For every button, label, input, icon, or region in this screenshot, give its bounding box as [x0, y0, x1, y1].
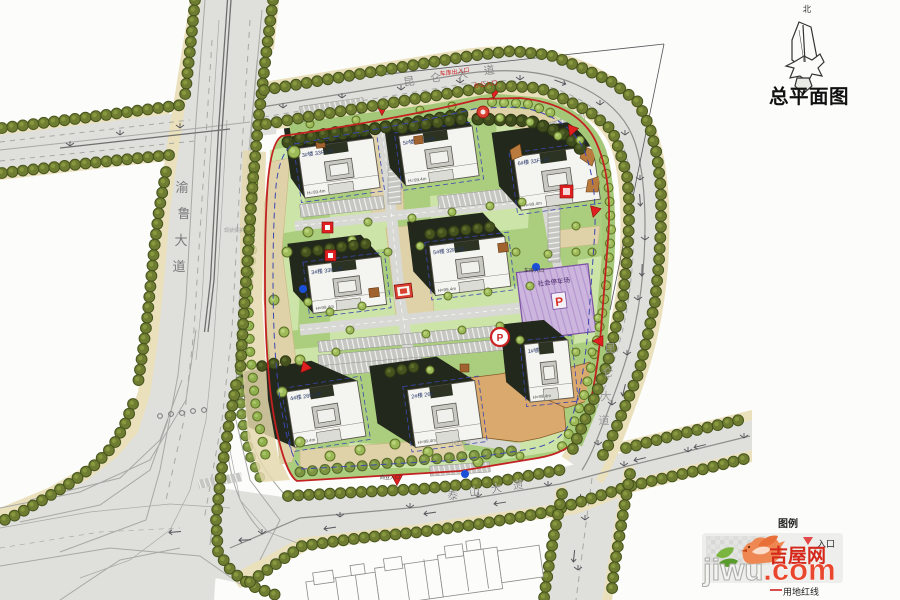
svg-text:北: 北	[803, 4, 812, 14]
svg-text:大: 大	[601, 389, 612, 403]
svg-text:商业入口: 商业入口	[380, 474, 400, 481]
svg-text:用地红线: 用地红线	[783, 586, 819, 597]
svg-text:车库入口: 车库入口	[524, 267, 544, 274]
svg-text:道: 道	[172, 259, 185, 274]
svg-text:鲁: 鲁	[177, 206, 190, 221]
svg-text:道: 道	[599, 413, 610, 427]
svg-text:P: P	[554, 294, 564, 309]
svg-text:图例: 图例	[778, 517, 798, 530]
svg-text:P: P	[497, 333, 504, 344]
svg-text:仑: 仑	[603, 365, 614, 379]
svg-text:总平面图: 总平面图	[769, 85, 849, 108]
svg-text:jiwu.com: jiwu.com	[702, 552, 836, 587]
svg-text:昆: 昆	[605, 342, 616, 355]
svg-text:渝: 渝	[175, 180, 188, 195]
svg-text:大: 大	[174, 233, 187, 248]
svg-text:现状保护: 现状保护	[224, 227, 244, 234]
svg-text:小区入口: 小区入口	[450, 440, 470, 447]
